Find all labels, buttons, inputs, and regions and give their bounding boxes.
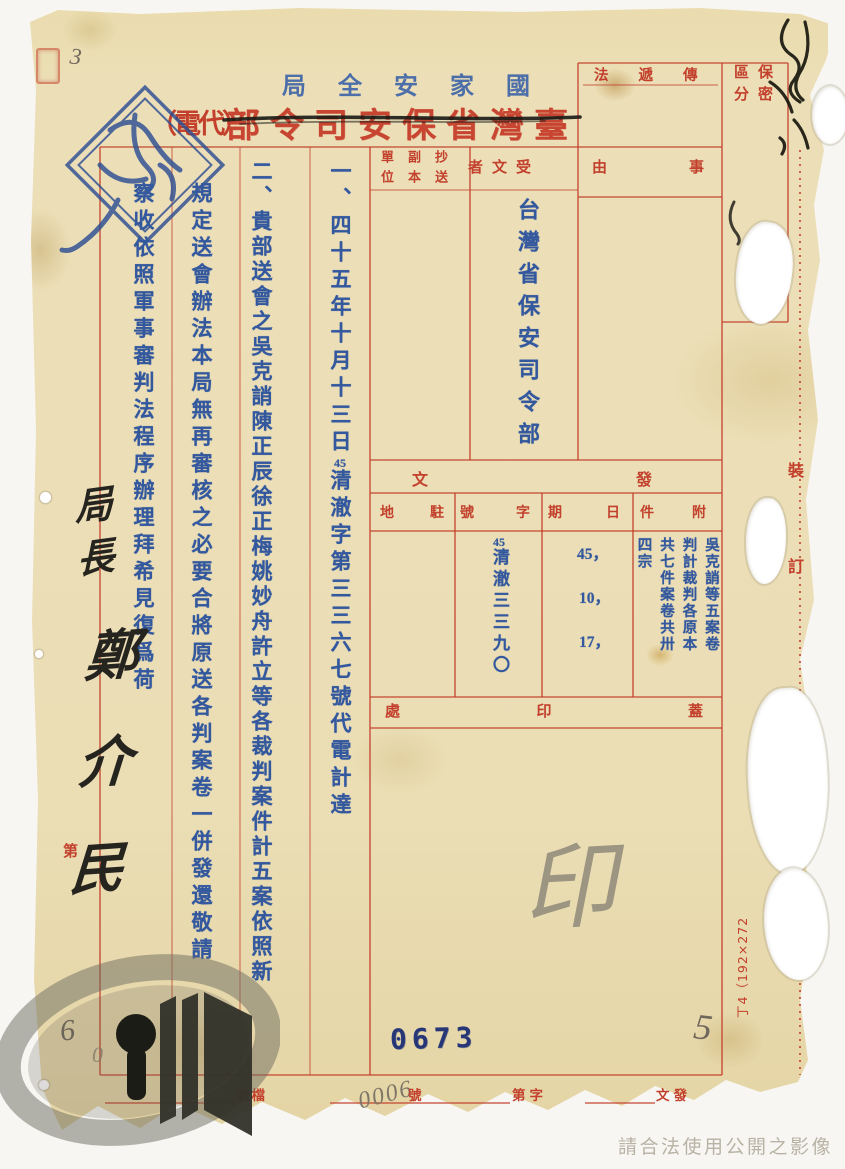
punch-hole-1 bbox=[40, 492, 51, 503]
number-suffix-label: 號 bbox=[408, 1084, 422, 1104]
dispatch-number-prefix: 45 bbox=[492, 536, 506, 548]
dispatch-number-chars: 清澈三三九〇 bbox=[490, 548, 509, 677]
seal-section-label: 處 印 蓋 bbox=[385, 700, 703, 721]
dispatch-date-day: 17， bbox=[579, 630, 610, 652]
dispatch-char-left: 文 bbox=[412, 466, 428, 490]
seal-char-3: 蓋 bbox=[688, 700, 703, 721]
attachment-value: 吳克誚等五案卷判計裁判各原本共七件案卷共卅四宗 bbox=[630, 537, 722, 661]
binding-label-bottom: 訂 bbox=[788, 553, 804, 577]
dispatch-number-value: 45清澈三三九〇 bbox=[487, 536, 512, 696]
dispatch-date-year: 45， bbox=[577, 542, 608, 564]
body-1-ref: 清澈字第三三六七號代電計達 bbox=[328, 469, 352, 820]
dispatch-char-right: 發 bbox=[636, 466, 652, 490]
usage-notice-watermark: 請合法使用公開之影像 bbox=[618, 1132, 833, 1159]
body-paragraph-2: 二、貴部送會之吳克誚陳正辰徐正梅姚妙舟許立等各裁判案件計五案依照新 bbox=[246, 160, 276, 1060]
archive-watermark-logo bbox=[0, 940, 280, 1169]
signature-title: 局長 bbox=[62, 482, 121, 630]
dispatch-section-label: 文 發 bbox=[412, 466, 652, 490]
cc-units-label: 抄送副本單位 bbox=[376, 150, 454, 190]
binding-label-top: 裝 bbox=[788, 457, 804, 481]
register-number-stamp: 0673 bbox=[390, 1021, 478, 1056]
seal-char-2: 印 bbox=[536, 700, 551, 721]
body-1-year-number: 45 bbox=[333, 457, 347, 469]
dispatch-doc-label: 文發 bbox=[656, 1084, 691, 1104]
subject-char-left: 由 bbox=[592, 156, 607, 177]
ordinal-label: 第 bbox=[63, 840, 78, 861]
subject-label: 由 事 bbox=[592, 156, 704, 177]
body-paragraph-3: 規定送會辦法本局無再審核之必要合將原送各判案卷一併發還敬請 bbox=[186, 182, 216, 1042]
attachment-label: 件附 bbox=[640, 502, 744, 522]
form-code: 丁4（192×272 bbox=[732, 858, 748, 1018]
word-ordinal-label: 第字 bbox=[512, 1084, 547, 1104]
pencil-seal-placeholder: 印 bbox=[519, 810, 620, 951]
recipient-label: 者文受 bbox=[468, 156, 540, 177]
dispatch-date-month: 10， bbox=[579, 586, 610, 608]
recipient-value: 台灣省保安司令部 bbox=[511, 198, 543, 468]
subject-char-right: 事 bbox=[689, 156, 704, 177]
scanned-document-page: 3 局全安家國 部令司安保省灣臺 （電代） bbox=[0, 0, 845, 1169]
classification-label: 保密區分 bbox=[726, 64, 776, 108]
seal-char-1: 處 bbox=[385, 700, 400, 721]
body-paragraph-1: 一、四十五年十月十三日45清澈字第三三六七號代電計達 bbox=[325, 160, 355, 860]
body-1-date: 一、四十五年十月十三日 bbox=[328, 160, 352, 457]
torn-edge-gap-5 bbox=[812, 86, 845, 144]
transmission-method-label: 法遞傳 bbox=[594, 64, 728, 85]
punch-hole-2 bbox=[35, 650, 43, 658]
